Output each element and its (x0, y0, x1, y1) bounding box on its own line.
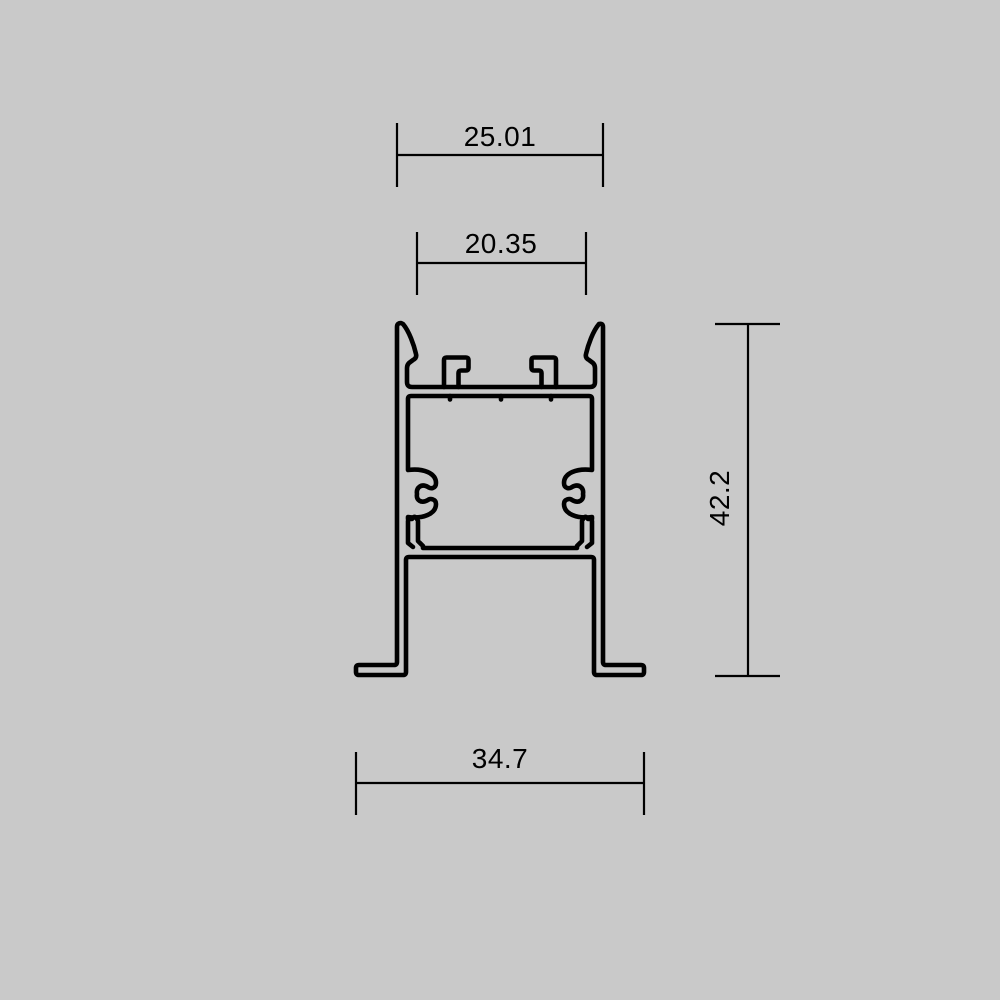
dimension-label-bottom-width: 34.7 (472, 743, 529, 774)
dimension-overall-height: 42.2 (704, 324, 780, 676)
dimension-label-top-width: 25.01 (464, 121, 537, 152)
dimension-bottom-width: 34.7 (356, 743, 644, 815)
profile-hook-right (532, 358, 557, 388)
profile-inner-cavity (408, 396, 592, 548)
drawing-canvas: 25.01 20.35 42.2 34.7 (0, 0, 1000, 1000)
profile-post-gap-left (408, 521, 413, 547)
technical-drawing: 25.01 20.35 42.2 34.7 (0, 0, 1000, 1000)
profile-post-gap-right (587, 521, 592, 547)
profile-cross-section (356, 323, 644, 675)
profile-outer-contour (356, 323, 644, 675)
profile-hook-left (444, 358, 469, 388)
dimension-label-overall-height: 42.2 (704, 470, 735, 527)
dimension-label-opening-width: 20.35 (465, 228, 538, 259)
dimension-top-width: 25.01 (397, 121, 603, 187)
dimension-opening-width: 20.35 (417, 228, 586, 295)
